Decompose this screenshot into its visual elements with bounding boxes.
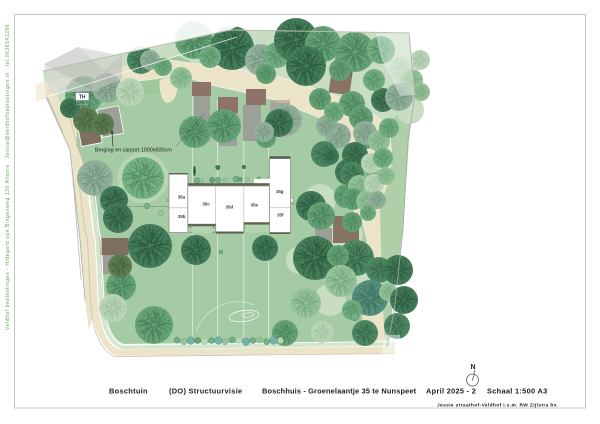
svg-text:Boschtuin: Boschtuin: [109, 387, 148, 396]
svg-text:Berging en carport 1000x600cm: Berging en carport 1000x600cm: [95, 148, 172, 154]
svg-text:35c: 35c: [202, 201, 210, 206]
svg-text:N: N: [470, 364, 475, 371]
svg-text:35g: 35g: [276, 189, 284, 194]
svg-text:Schaal 1:500 A3: Schaal 1:500 A3: [487, 387, 548, 396]
svg-text:35f: 35f: [277, 212, 284, 217]
svg-text:(DO) Structuurvisie: (DO) Structuurvisie: [169, 387, 242, 396]
svg-text:Veldhof beplantingen - Hidegar: Veldhof beplantingen - Hidegard van Bing…: [5, 24, 11, 330]
svg-text:April 2025 - 2: April 2025 - 2: [426, 387, 476, 396]
svg-text:35d: 35d: [226, 205, 234, 210]
svg-text:35e: 35e: [251, 202, 259, 207]
svg-text:35b: 35b: [178, 214, 186, 219]
svg-text:TH: TH: [79, 95, 86, 101]
svg-text:Jessie straathof-Veldhof i.s.m: Jessie straathof-Veldhof i.s.m. RW Zijls…: [437, 403, 558, 409]
svg-text:35a: 35a: [178, 194, 186, 199]
svg-text:Boschhuis - Groenelaantje 35 t: Boschhuis - Groenelaantje 35 te Nunspeet: [262, 387, 417, 396]
